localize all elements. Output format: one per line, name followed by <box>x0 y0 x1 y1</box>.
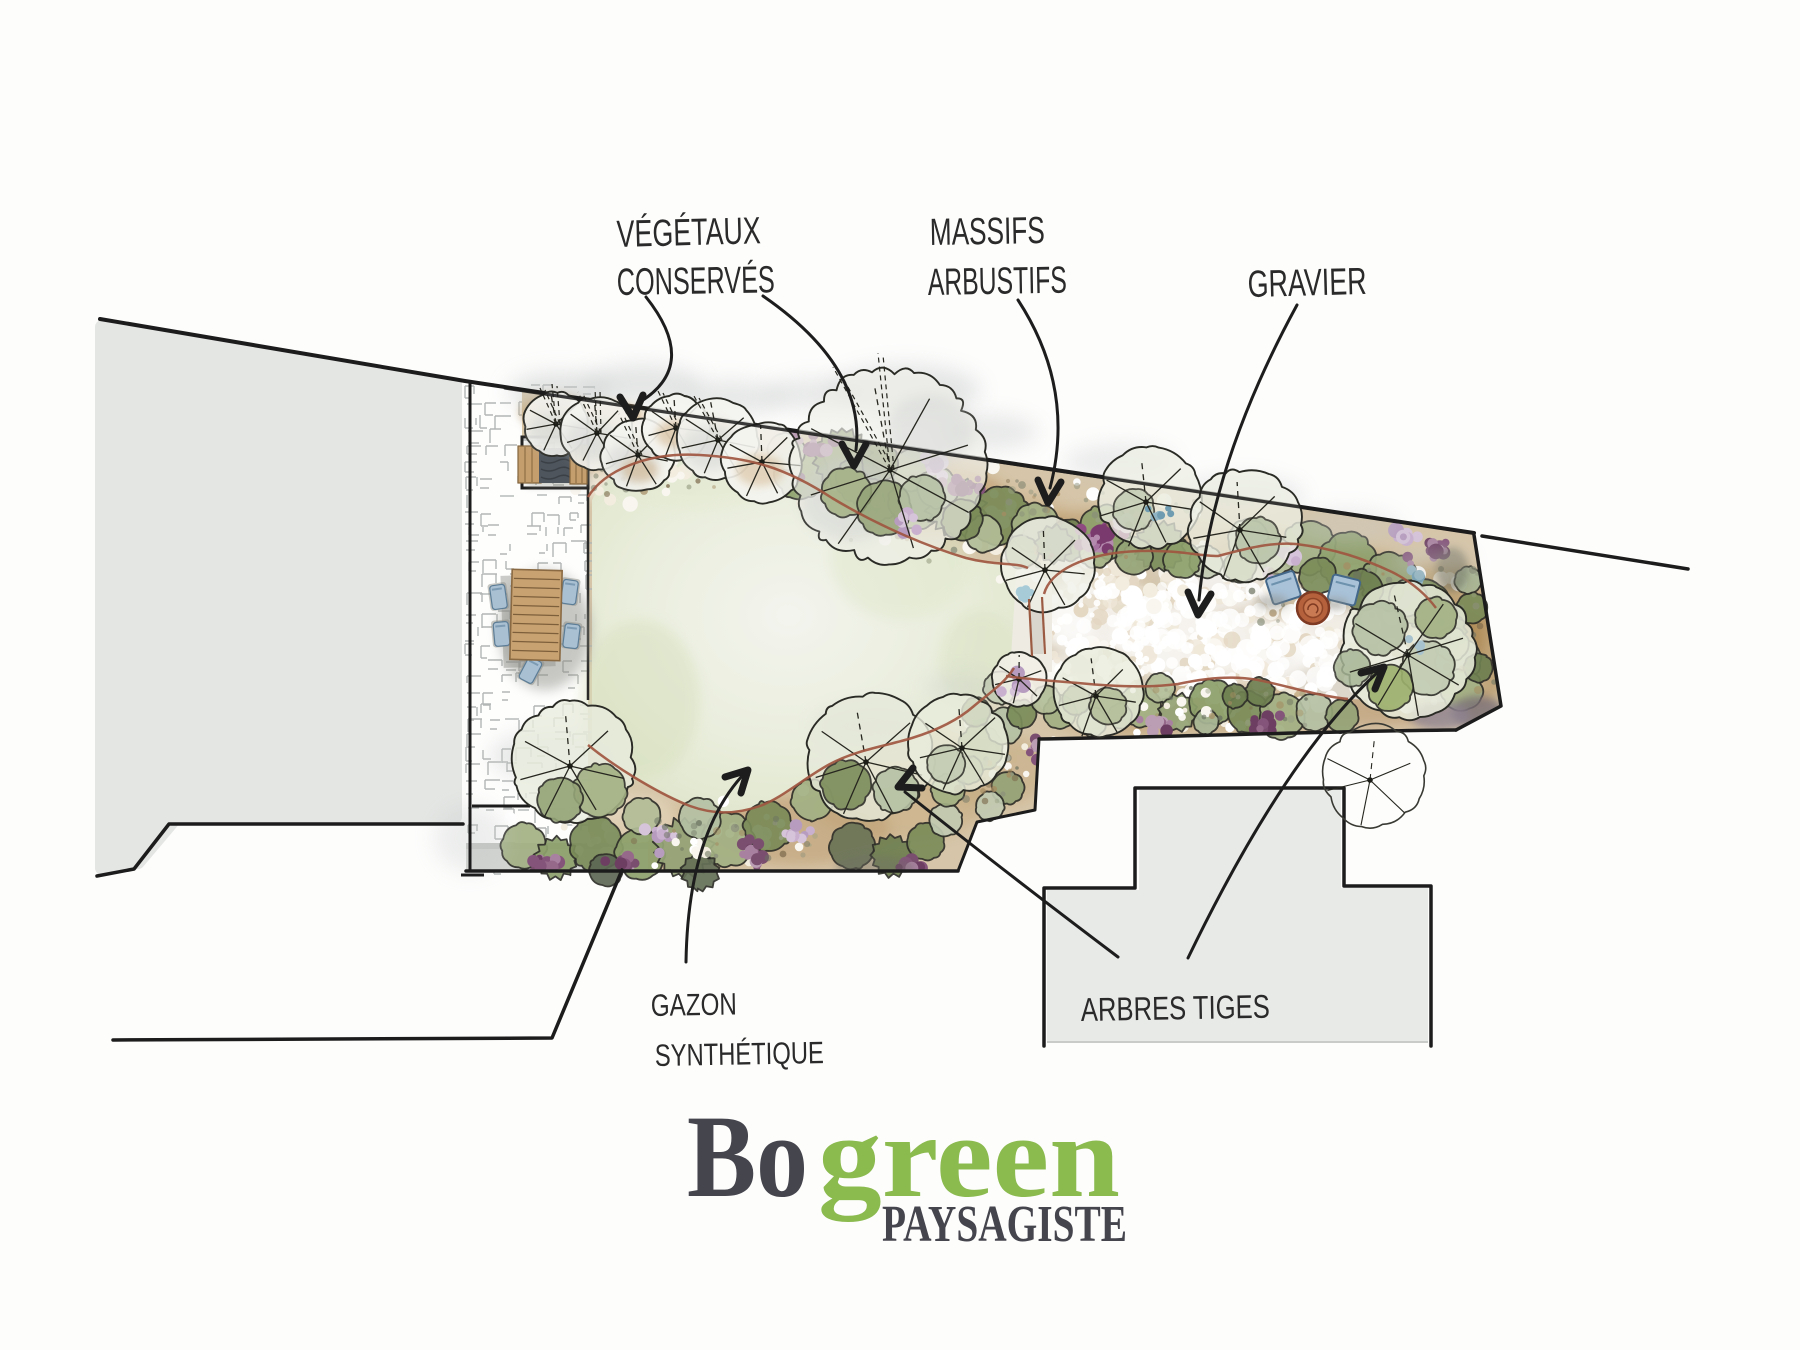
svg-text:Bo: Bo <box>687 1091 808 1222</box>
svg-text:GRAVIER: GRAVIER <box>1247 261 1367 306</box>
svg-text:GAZON: GAZON <box>651 987 738 1023</box>
svg-text:PAYSAGISTE: PAYSAGISTE <box>882 1196 1127 1253</box>
svg-text:SYNTHÉTIQUE: SYNTHÉTIQUE <box>655 1035 825 1073</box>
svg-text:VÉGÉTAUX: VÉGÉTAUX <box>616 209 761 256</box>
svg-text:ARBRES TIGES: ARBRES TIGES <box>1080 988 1270 1028</box>
svg-text:MASSIFS: MASSIFS <box>929 210 1045 254</box>
svg-text:CONSERVÉS: CONSERVÉS <box>616 258 775 304</box>
svg-text:ARBUSTIFS: ARBUSTIFS <box>927 260 1067 304</box>
